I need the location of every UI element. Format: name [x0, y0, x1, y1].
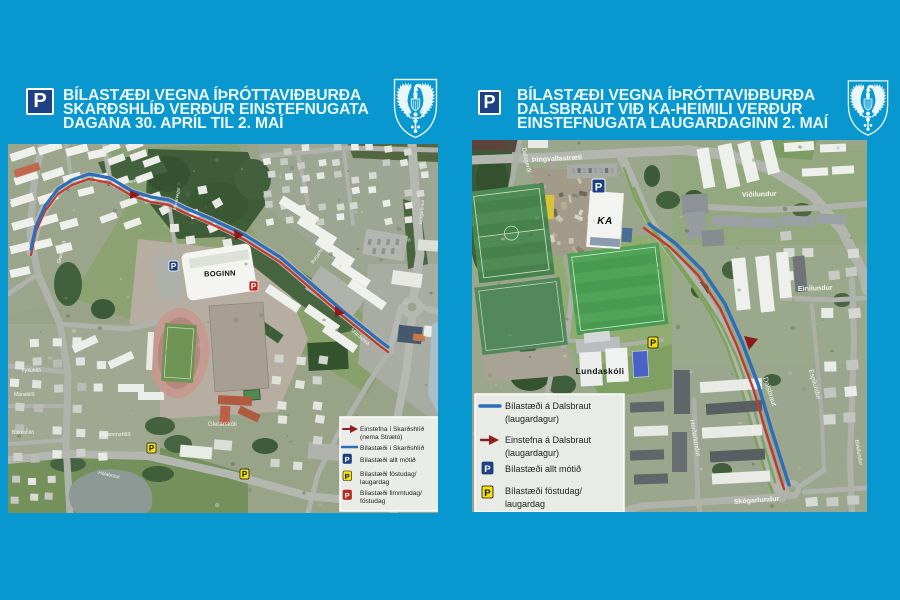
svg-text:Bílastæði á Dalsbraut: Bílastæði á Dalsbraut [505, 401, 592, 411]
svg-text:Hvammshlíð: Hvammshlíð [100, 431, 131, 438]
svg-text:P: P [149, 444, 155, 453]
svg-text:BOGINN: BOGINN [204, 268, 236, 278]
svg-text:Bílastæði föstudag/: Bílastæði föstudag/ [360, 470, 417, 478]
svg-text:Viðilundur: Viðilundur [742, 190, 777, 199]
svg-text:(laugardagur): (laugardagur) [505, 448, 559, 458]
svg-text:P: P [345, 491, 350, 500]
svg-text:P: P [484, 488, 491, 499]
svg-text:P: P [171, 262, 177, 271]
svg-text:Mánahlíð: Mánahlíð [14, 391, 35, 398]
svg-text:Bílastæði allt mótið: Bílastæði allt mótið [505, 464, 581, 474]
svg-text:Bílastæði í Skarðshlíð: Bílastæði í Skarðshlíð [360, 444, 424, 452]
svg-text:Einstefna á Dalsbraut: Einstefna á Dalsbraut [505, 435, 592, 445]
svg-text:föstudag: föstudag [360, 498, 386, 505]
svg-text:Bílastæði allt mótið: Bílastæði allt mótið [360, 456, 416, 464]
svg-text:KA: KA [597, 216, 612, 227]
svg-text:Glerárskóli: Glerárskóli [208, 422, 237, 428]
svg-text:(nema Strætó): (nema Strætó) [360, 434, 403, 441]
svg-text:laugardag: laugardag [505, 499, 545, 509]
svg-text:(laugardagur): (laugardagur) [505, 414, 559, 424]
svg-text:laugardag: laugardag [360, 479, 390, 486]
svg-text:P: P [484, 464, 491, 475]
svg-text:P: P [595, 182, 603, 194]
svg-text:P: P [650, 338, 656, 348]
svg-text:P: P [242, 470, 248, 479]
svg-text:Einilundur: Einilundur [798, 285, 833, 293]
svg-text:P: P [251, 282, 257, 291]
svg-text:Fjóluhlíð: Fjóluhlíð [22, 367, 41, 374]
svg-text:P: P [345, 472, 350, 481]
svg-text:Bakkahlíð: Bakkahlíð [12, 429, 34, 436]
svg-text:Einstefna í Skarðshlíð: Einstefna í Skarðshlíð [360, 425, 424, 433]
svg-text:Bílastæði fimmtudag/: Bílastæði fimmtudag/ [360, 489, 422, 497]
svg-text:Bílastæði föstudag/: Bílastæði föstudag/ [505, 486, 583, 496]
svg-text:Lundaskóli: Lundaskóli [576, 366, 625, 376]
svg-text:P: P [345, 455, 350, 464]
